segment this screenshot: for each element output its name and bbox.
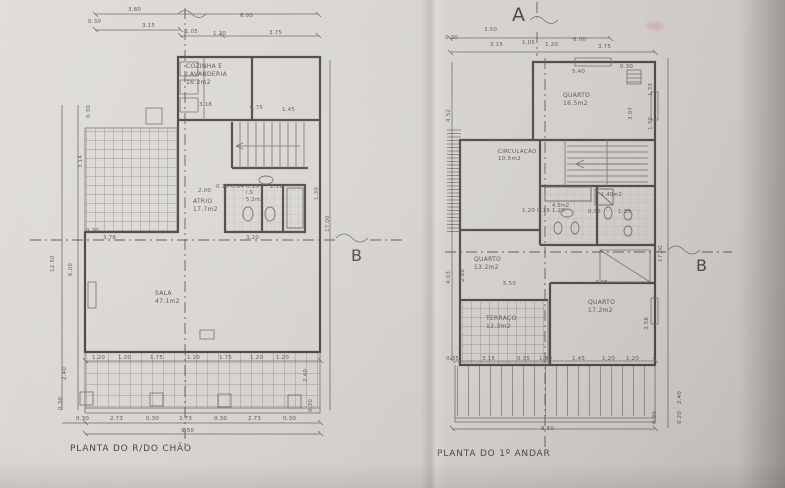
right-terrace-tile-grid — [462, 302, 546, 363]
dim-label: 4.03 — [446, 271, 452, 284]
room-name: CIRCULAÇÃO — [498, 149, 537, 156]
dim-label: 9.50 — [541, 426, 554, 432]
dim-label: 3.20 — [246, 235, 259, 241]
room-area: 13.2m2 — [474, 264, 501, 272]
room-label-sala: SALA 47.1m2 — [155, 290, 180, 306]
left-veranda-tile-grid — [86, 353, 319, 407]
dim-label: 3.75 — [598, 44, 611, 50]
dim-label: 0.30 — [58, 397, 64, 410]
dim-label: 2.40 — [303, 369, 309, 382]
dim-label: 1.20 — [545, 42, 558, 48]
dim-label: 1.80 — [539, 356, 552, 362]
dim-label: 1.45 — [282, 107, 295, 113]
dim-label: 4.52 — [446, 109, 452, 122]
dim-label: 3.50 — [484, 27, 497, 33]
dim-label: 17.00 — [325, 215, 331, 232]
dim-label: 3.35 — [595, 280, 608, 286]
paper-fold-crease — [420, 0, 446, 488]
dim-label: 6.00 — [573, 37, 586, 43]
dim-label: 1.33 — [648, 83, 654, 96]
room-area: 1.40m2 — [601, 192, 622, 199]
room-area: 47.1m2 — [155, 298, 180, 306]
dim-label: 0.30 — [214, 416, 227, 422]
section-marker-b-right: B — [696, 256, 707, 275]
dim-label: 9.50 — [181, 428, 194, 434]
dim-label: 3.78 — [103, 235, 116, 241]
paper-right-edge-shadow — [738, 0, 785, 488]
room-name: TERRAÇO — [486, 315, 517, 323]
room-area: 10.5m2 — [498, 156, 537, 163]
dim-label: 2.00 — [198, 188, 211, 194]
room-area: 17.2m2 — [588, 307, 615, 315]
room-name: ATRIO — [193, 198, 218, 206]
dim-label: 1.20 — [602, 356, 615, 362]
dim-label: 1.20 — [626, 356, 639, 362]
dim-label: 0.35 — [517, 356, 530, 362]
room-label-terraco: TERRAÇO 12.3m2 — [486, 315, 517, 331]
paper-bottom-shadow — [0, 462, 785, 488]
dim-label: 6.00 — [240, 13, 253, 19]
right-hatched-wall — [447, 128, 461, 232]
dim-label: 2.73 — [179, 416, 192, 422]
dim-label: 3.15 — [482, 356, 495, 362]
dim-label: 3.58 — [644, 317, 650, 330]
room-label-cozinha: COZINHA E LAVANDERIA 16.2m2 — [186, 63, 227, 86]
dim-label: 0.30 — [445, 35, 458, 41]
dim-label: 5.40 — [572, 69, 585, 75]
dim-label: 2.16 — [270, 184, 283, 190]
room-area: 12.3m2 — [486, 323, 517, 331]
room-area: 5.2m2 — [246, 197, 264, 204]
dim-label: 1.05 — [185, 29, 198, 35]
dim-label: 5.50 — [503, 281, 516, 287]
room-label-atrio: ATRIO 17.7m2 — [193, 198, 218, 214]
dim-label: 6.00 — [68, 263, 74, 276]
dim-label: 3.15 — [490, 42, 503, 48]
dim-label: 0.35 — [446, 356, 459, 362]
dim-label: 1.20 — [250, 355, 263, 361]
room-area: 16.2m2 — [186, 79, 227, 87]
room-name: QUARTO — [563, 92, 590, 100]
room-name: QUARTO — [588, 299, 615, 307]
left-bathroom-tile-grid — [226, 186, 304, 231]
section-marker-a: A — [512, 4, 525, 26]
dim-label: 2.88 — [460, 269, 466, 282]
room-label-is-ground: I.S. 5.2m2 — [246, 190, 264, 203]
room-name: LAVANDERIA — [186, 71, 227, 79]
dim-label: 0.30 — [620, 64, 633, 70]
dim-label: 1.20 — [187, 355, 200, 361]
dim-label: 3.07 — [628, 107, 634, 120]
dim-label: 2.73 — [248, 416, 261, 422]
dim-label: 17.00 — [658, 245, 664, 262]
dim-label: 1.20 — [276, 355, 289, 361]
room-area: 17.7m2 — [193, 206, 218, 214]
room-label-quarto3: QUARTO 17.2m2 — [588, 299, 615, 315]
right-plan-title: PLANTA DO 1º ANDAR — [437, 449, 551, 459]
dim-label: 1.75 — [150, 355, 163, 361]
room-label-quarto2: QUARTO 13.2m2 — [474, 256, 501, 272]
dim-label: 2.40 — [677, 391, 683, 404]
room-name: SALA — [155, 290, 180, 298]
right-pergola-balusters — [457, 366, 653, 416]
dim-label: 0.20 — [677, 411, 683, 424]
dim-label: 2.40 — [62, 367, 68, 380]
dim-label: 1.20 — [92, 355, 105, 361]
dim-label: 1.20 0.15 1.20 — [522, 208, 565, 214]
dim-label: 1.20 — [213, 31, 226, 37]
room-name: QUARTO — [474, 256, 501, 264]
dim-label: 0.95 — [588, 209, 601, 215]
dim-label: 3.18 — [199, 102, 212, 108]
dim-label: 1.30 — [314, 187, 320, 200]
section-marker-b-left: B — [351, 246, 362, 265]
dim-label: 2.73 — [110, 416, 123, 422]
dim-label: 0.30 — [283, 416, 296, 422]
dim-label: 1.30 — [648, 117, 654, 130]
dim-label: 1.35 — [618, 209, 631, 215]
right-bathroom-tile-grid — [542, 188, 653, 243]
dim-label: 0.30 — [308, 399, 314, 412]
dim-label: 0.30 — [146, 416, 159, 422]
dim-label: 0.30 — [86, 105, 92, 118]
room-area: 16.5m2 — [563, 100, 590, 108]
dim-label: 3.80 — [128, 7, 141, 13]
dim-label: 12.50 — [50, 255, 56, 272]
room-label-quarto1: QUARTO 16.5m2 — [563, 92, 590, 108]
plan-linework — [0, 0, 785, 488]
dim-label: 0.15 0.84 0.15 — [216, 184, 259, 190]
room-label-circulacao: CIRCULAÇÃO 10.5m2 — [498, 149, 537, 163]
pink-smudge-mark — [646, 22, 664, 30]
dim-label: 1.75 — [219, 355, 232, 361]
dim-label: 1.05 — [522, 40, 535, 46]
dim-label: 3.14 — [78, 155, 84, 168]
dim-label: 1.45 — [572, 356, 585, 362]
dim-label: 0.30 — [88, 19, 101, 25]
dim-label: 0.30 — [86, 228, 99, 234]
dim-label: 0.30 — [652, 411, 658, 424]
left-patio-tile-grid — [86, 129, 177, 231]
left-plan-title: PLANTA DO R/DO CHÃO — [70, 444, 192, 454]
floor-plan-photo: COZINHA E LAVANDERIA 16.2m2 ATRIO 17.7m2… — [0, 0, 785, 488]
dim-label: 0.30 — [76, 416, 89, 422]
room-name: COZINHA E — [186, 63, 227, 71]
dim-label: 0.75 — [250, 105, 263, 111]
dim-label: 1.20 — [118, 355, 131, 361]
dim-label: 3.75 — [269, 30, 282, 36]
room-label-is2-first: 1.40m2 — [601, 192, 622, 199]
dim-label: 3.15 — [142, 23, 155, 29]
